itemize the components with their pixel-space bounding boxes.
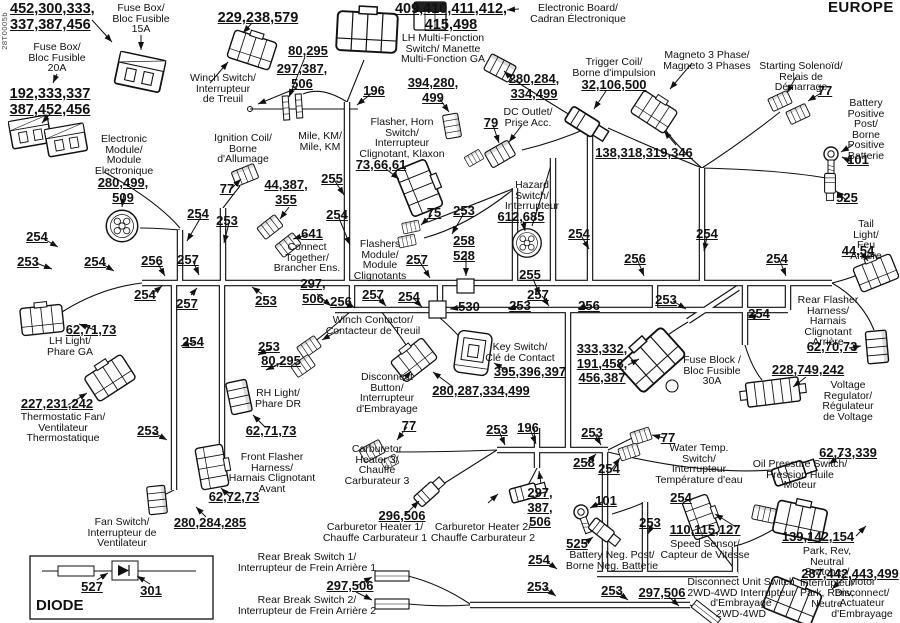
callout-module-nums: 280,499, 509 [98,176,149,205]
label-fuse-block-30a: Fuse Block / Bloc Fusible 30A [683,355,741,387]
label-rear-break-switch1: Rear Break Switch 1/ Interrupteur de Fre… [238,552,376,573]
callout-394-280-499: 394,280, 499 [408,76,459,105]
callout-297-387-506: 297, 387, 506 [527,486,552,530]
fan-switch-illustration [147,485,168,515]
wire-callout: 196 [517,421,539,436]
wire-callout: 297, 506 [300,277,325,306]
label-flasher-horn-switch: Flasher, Horn Switch/ Interrupteur Clign… [359,117,444,159]
label-magneto: Magneto 3 Phase/ Magneto 3 Phases [663,50,751,71]
wire-callout: 253 [655,293,677,308]
callout-fuse15-nums: 452,300,333, 337,387,456 [10,1,95,33]
wire-callout: 253 [453,204,475,219]
wire-callout: 257 [527,288,549,303]
ignition-coil-illustration [231,163,259,186]
callout-ignition-77: 77 [220,182,234,197]
wire-callout: 253 [639,516,661,531]
fuse-box-20a-illustration [8,115,87,157]
wire-callout: 258 [573,456,595,471]
wire-callout: 253 [17,255,39,270]
callout-44-54: 44,54 [842,244,875,259]
label-carburetor-heater1: Carburetor Heater 1/ Chauffe Carburateur… [323,522,427,543]
fuse-box-15a-illustration [114,51,166,92]
starting-solenoid-illustration [768,90,811,124]
label-lh-multifunction-switch: LH Multi-Fonction Switch/ Manette Multi-… [401,33,485,65]
label-thermostatic-fan: Thermostatic Fan/ Ventilateur Thermostat… [21,412,106,444]
wire-callout: 257 [406,253,428,268]
callout-73-66-61: 73,66,61 [356,158,407,173]
callout-fuse20-nums: 192,333,337 387,452,456 [10,86,91,118]
callout-rh-light-nums: 62,71,73 [246,424,297,439]
label-rear-break-switch2: Rear Break Switch 2/ Interrupteur de Fre… [238,595,376,616]
wire-callout: 254 [670,491,692,506]
label-disconnect-unit-switch: Disconnect Unit Switch 2WD-4WD Interrupt… [687,577,794,619]
wire-callout: 80,295 [261,354,301,369]
callout-527: 527 [81,580,103,595]
thermostatic-fan-illustration [81,350,136,402]
mile-km-resistors-illustration [282,94,303,120]
splice-box-528 [457,279,474,293]
label-winch-switch: Winch Switch/ Interrupteur de Treuil [190,73,256,105]
winch-switch-illustration [227,25,279,70]
electronic-module-illustration [106,210,138,242]
wire-callout: 257 [176,297,198,312]
callout-641: 641 [301,227,323,242]
label-trigger-coil: Trigger Coil/ Borne d'impulsion [572,57,655,78]
rh-light-illustration [226,379,253,415]
label-battery-negative: Battery Neg. Post/ Borne Neg. Batterie [566,550,658,571]
wire-callout: 254 [748,307,770,322]
wire-callout: 530 [458,300,480,315]
callout-mile-nums2: 297,387, 506 [277,62,328,91]
label-oil-pressure-switch: Oil Pressure Switch/ Pression Huile Mote… [750,459,850,491]
lh-multifunction-switch-illustration [336,5,398,53]
wire-callout: 254 [568,227,590,242]
wire-callout: 255 [519,268,541,283]
document-code: 28T0005b [0,12,9,50]
wire-callout: 77 [402,419,416,434]
label-lh-light: LH Light/ Phare GA [47,336,93,357]
label-motor-disconnect: Motor Disconnect/ Actuateur d'Embrayage [831,577,893,619]
label-fuse-box-20a: Fuse Box/ Bloc Fusible 20A [28,42,85,74]
label-dc-outlet: DC Outlet/ Prise Acc. [503,107,552,128]
callout-du-297-506: 297,506 [639,586,686,601]
label-starting-solenoid: Starting Solenoïd/ Relais de Démarrage [752,61,851,93]
label-speed-sensor: Speed Sensor/ Capteur de Vitesse [660,539,749,560]
wire-callout: 256 [330,295,352,310]
callout-62-70-73: 62,70,73 [807,340,858,355]
label-connect-together: Connect Together/ Brancher Ens. [274,242,341,274]
label-carburetor-heater2: Carburetor Heater 2/ Chauffe Carburateur… [431,522,535,543]
flasher-connector-394-illustration [442,113,461,139]
rear-flasher-connector-illustration [865,330,888,364]
wire-callout: 254 [26,230,48,245]
wire-callout: 254 [696,227,718,242]
label-fan-switch: Fan Switch/ Interrupteur de Ventilateur [88,517,157,549]
wire-callout: 254 [398,290,420,305]
dc-outlet-illustration [464,140,516,168]
wire-callout: 253 [486,423,508,438]
wire-callout: 254 [766,252,788,267]
callout-139-142-154: 139,142,154 [782,530,854,545]
hazard-switch-illustration [513,229,542,258]
callout-trigger-nums: 32,106,500 [581,78,646,93]
diode-title: DIODE [36,598,84,614]
label-electronic-board: Electronic Board/ Cadran Électronique [530,3,626,24]
label-ignition-coil: Ignition Coil/ Borne d'Allumage [214,133,272,165]
wire-callout: 254 [187,207,209,222]
wire-callout: 253 [137,424,159,439]
label-voltage-regulator: Voltage Regulator/ Régulateur de Voltage [822,380,874,422]
callout-79: 79 [484,116,498,131]
front-flasher-illustration [195,443,233,490]
wire-callout: 257 [177,253,199,268]
wire-callout: 255 [321,172,343,187]
callout-110-115-127: 110,115,127 [670,523,741,538]
voltage-regulator-illustration [739,376,807,408]
callout-75: 75 [427,206,441,221]
rear-break-switch2-illustration [375,599,409,609]
wire-callout: 254 [326,208,348,223]
callout-62-72-73: 62,72,73 [209,490,260,505]
wire-callout: 253 [601,584,623,599]
callout-mile-nums1: 80,295 [288,44,328,59]
wire-callout: 256 [141,254,163,269]
page-title: EUROPE [828,3,894,14]
wiring-diagram-page: EUROPE 28T0005b 452,300,333, 337,387,456… [0,0,900,623]
wire-callout: 77 [661,431,675,446]
label-hazard-switch: Hazard Switch/ Interrupteur [505,180,559,212]
wire-callout: 254 [134,288,156,303]
wire-callout: 256 [578,299,600,314]
callout-228-749-242: 228,749,242 [772,363,844,378]
lh-light-illustration [19,300,64,336]
callout-395-396-397: 395,396,397 [494,365,566,380]
label-flashers-module: Flashers Module/ Module Clignotants [354,239,407,281]
wire-callout: 258 528 [453,234,475,263]
wire-callout: 253 [216,214,238,229]
callout-solenoid-77: 77 [818,84,832,99]
rear-break-switch1-illustration [375,571,409,581]
callout-batpos-525: 525 [836,191,858,206]
callout-ga-nums: 280,284, 334,499 [509,72,560,101]
callout-612-685: 612,685 [498,210,545,225]
label-front-flasher-harness: Front Flasher Harness/ Harnais Clignotan… [229,452,315,494]
label-mile-km: Mile, KM/ Mile, KM [298,131,342,152]
wire-callout: 254 [528,553,550,568]
water-temp-switch-illustration [618,427,653,461]
wire-callout: 253 [255,294,277,309]
magneto-illustration [630,87,680,134]
label-water-temp-switch: Water Temp. Switch/ Interrupteur Tempéra… [655,443,742,485]
splice-box-530 [429,301,446,318]
wire-callout: 253 [581,426,603,441]
callout-magneto-nums: 138,318,319,346 [595,146,693,161]
label-electronic-module: Electronic Module/ Module Electronique [95,134,153,176]
callout-196: 196 [363,84,385,99]
callout-280-284-285: 280,284,285 [174,516,246,531]
wire-callout: 257 [362,288,384,303]
callout-301: 301 [140,584,162,599]
wire-callout: 256 [624,252,646,267]
wire-callout: 253 [527,580,549,595]
wire-callout: 254 [84,255,106,270]
label-winch-contactor: Winch Contactor/ Contacteur de Treuil [326,315,421,336]
label-fuse-box-15a: Fuse Box/ Bloc Fusible 15A [112,3,169,35]
callout-winch-switch-nums: 229,238,579 [218,10,299,26]
label-rh-light: RH Light/ Phare DR [255,388,301,409]
wire-callout: 254 [182,335,204,350]
label-key-switch: Key Switch/ Clé de Contact [485,342,554,363]
callout-280-287-334-499: 280,287,334,499 [432,384,530,399]
callout-fuse-block-nums: 333,332, 191,458, 456,387 [577,342,628,386]
callout-batneg-101: 101 [595,494,617,509]
callout-44-387-355: 44,387, 355 [264,178,307,207]
callout-board-nums: 409,410,411,412, 415,498 [395,1,507,33]
callout-227-231-242: 227,231,242 [21,397,93,412]
callout-rb-297-506: 297,506 [327,579,374,594]
label-carburetor-heater3: Carburetor Heater 3/ Chauffe Carburateur… [345,444,410,486]
label-disconnect-button: Disconnect Button/ Interrupteur d'Embray… [356,372,418,414]
callout-batpos-101: 101 [847,153,869,168]
wire-callout: 254 [598,462,620,477]
